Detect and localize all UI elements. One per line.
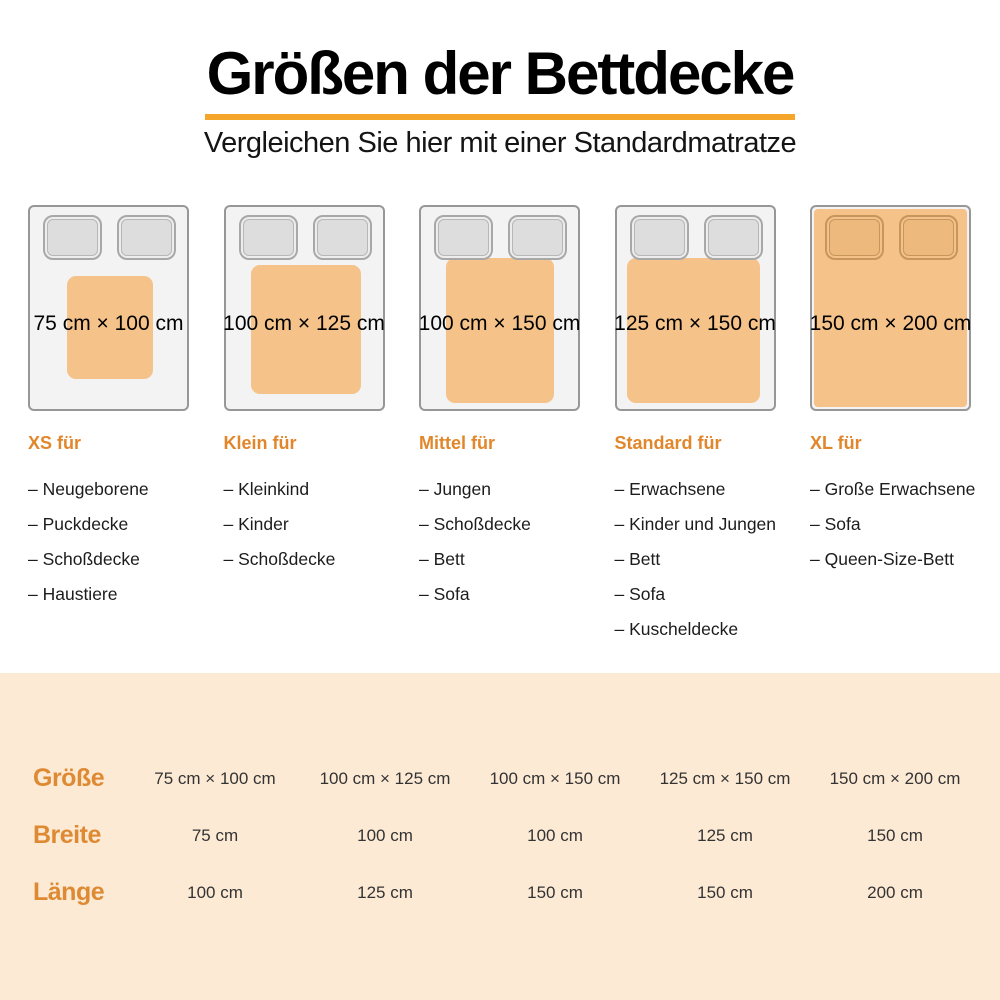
table-cell: 100 cm × 125 cm <box>300 769 470 789</box>
page-subtitle: Vergleichen Sie hier mit einer Standardm… <box>0 127 1000 160</box>
size-card-klein: 100 cm × 125 cm Klein für – Kleinkind– K… <box>224 205 420 655</box>
use-case-item: – Schoßdecke <box>224 550 420 568</box>
pillows <box>43 215 176 260</box>
row-label: Länge <box>0 878 130 907</box>
size-label: 75 cm × 100 cm <box>34 312 184 336</box>
pillows <box>434 215 567 260</box>
use-case-item: – Sofa <box>810 515 1000 533</box>
card-heading: Mittel für <box>419 433 615 454</box>
pillow-icon <box>313 215 372 260</box>
pillow-icon <box>434 215 493 260</box>
table-cell: 150 cm <box>470 883 640 903</box>
use-case-item: – Kleinkind <box>224 480 420 498</box>
use-case-item: – Erwachsene <box>615 480 811 498</box>
bed-diagram: 75 cm × 100 cm <box>28 205 189 411</box>
table-cell: 200 cm <box>810 883 980 903</box>
bed-diagram: 125 cm × 150 cm <box>615 205 776 411</box>
pillow-icon <box>239 215 298 260</box>
use-case-item: – Jungen <box>419 480 615 498</box>
pillow-inner <box>829 219 880 256</box>
use-case-list: – Kleinkind– Kinder– Schoßdecke <box>224 480 420 568</box>
size-card-mittel: 100 cm × 150 cm Mittel für – Jungen– Sch… <box>419 205 615 655</box>
table-cell: 75 cm × 100 cm <box>130 769 300 789</box>
size-cards-row: 75 cm × 100 cm XS für – Neugeborene– Puc… <box>28 205 1000 655</box>
pillow-icon <box>899 215 958 260</box>
table-row-groesse: Größe 75 cm × 100 cm100 cm × 125 cm100 c… <box>0 750 1000 807</box>
size-card-xs: 75 cm × 100 cm XS für – Neugeborene– Puc… <box>28 205 224 655</box>
bed-diagram: 100 cm × 150 cm <box>419 205 580 411</box>
pillow-inner <box>438 219 489 256</box>
size-table-section: Größe 75 cm × 100 cm100 cm × 125 cm100 c… <box>0 673 1000 1000</box>
pillow-inner <box>121 219 172 256</box>
table-cell: 100 cm <box>300 826 470 846</box>
use-case-item: – Kuscheldecke <box>615 620 811 638</box>
use-case-item: – Schoßdecke <box>28 550 224 568</box>
pillows <box>630 215 763 260</box>
table-cell: 150 cm <box>810 826 980 846</box>
table-cell: 100 cm <box>130 883 300 903</box>
table-cell: 75 cm <box>130 826 300 846</box>
use-case-list: – Erwachsene– Kinder und Jungen– Bett– S… <box>615 480 811 638</box>
page-title: Größen der Bettdecke <box>205 42 796 120</box>
bed-diagram: 150 cm × 200 cm <box>810 205 971 411</box>
size-label: 150 cm × 200 cm <box>810 312 972 336</box>
card-heading: XL für <box>810 433 1000 454</box>
pillow-icon <box>704 215 763 260</box>
card-heading: Klein für <box>224 433 420 454</box>
use-case-list: – Große Erwachsene– Sofa– Queen-Size-Bet… <box>810 480 1000 568</box>
header: Größen der Bettdecke Vergleichen Sie hie… <box>0 42 1000 160</box>
pillow-inner <box>708 219 759 256</box>
use-case-item: – Queen-Size-Bett <box>810 550 1000 568</box>
table-cell: 125 cm × 150 cm <box>640 769 810 789</box>
pillow-icon <box>825 215 884 260</box>
use-case-item: – Kinder und Jungen <box>615 515 811 533</box>
pillow-icon <box>630 215 689 260</box>
table-cell: 125 cm <box>640 826 810 846</box>
pillow-icon <box>117 215 176 260</box>
size-label: 100 cm × 125 cm <box>223 312 385 336</box>
size-card-standard: 125 cm × 150 cm Standard für – Erwachsen… <box>615 205 811 655</box>
pillow-inner <box>317 219 368 256</box>
use-case-item: – Puckdecke <box>28 515 224 533</box>
use-case-item: – Schoßdecke <box>419 515 615 533</box>
table-row-breite: Breite 75 cm100 cm100 cm125 cm150 cm <box>0 807 1000 864</box>
size-label: 125 cm × 150 cm <box>614 312 776 336</box>
row-label: Breite <box>0 821 130 850</box>
size-card-xl: 150 cm × 200 cm XL für – Große Erwachsen… <box>810 205 1000 655</box>
use-case-list: – Neugeborene– Puckdecke– Schoßdecke– Ha… <box>28 480 224 603</box>
pillow-inner <box>903 219 954 256</box>
use-case-list: – Jungen– Schoßdecke– Bett– Sofa <box>419 480 615 603</box>
pillows <box>239 215 372 260</box>
pillow-inner <box>634 219 685 256</box>
pillow-inner <box>243 219 294 256</box>
table-cell: 150 cm <box>640 883 810 903</box>
pillows <box>825 215 958 260</box>
table-cell: 100 cm × 150 cm <box>470 769 640 789</box>
pillow-icon <box>43 215 102 260</box>
table-cell: 100 cm <box>470 826 640 846</box>
use-case-item: – Bett <box>615 550 811 568</box>
size-table: Größe 75 cm × 100 cm100 cm × 125 cm100 c… <box>0 673 1000 921</box>
card-heading: Standard für <box>615 433 811 454</box>
use-case-item: – Neugeborene <box>28 480 224 498</box>
table-row-laenge: Länge 100 cm125 cm150 cm150 cm200 cm <box>0 864 1000 921</box>
use-case-item: – Kinder <box>224 515 420 533</box>
bed-diagram: 100 cm × 125 cm <box>224 205 385 411</box>
use-case-item: – Sofa <box>615 585 811 603</box>
use-case-item: – Sofa <box>419 585 615 603</box>
pillow-icon <box>508 215 567 260</box>
use-case-item: – Bett <box>419 550 615 568</box>
table-cell: 150 cm × 200 cm <box>810 769 980 789</box>
pillow-inner <box>512 219 563 256</box>
card-heading: XS für <box>28 433 224 454</box>
size-label: 100 cm × 150 cm <box>419 312 581 336</box>
table-cell: 125 cm <box>300 883 470 903</box>
pillow-inner <box>47 219 98 256</box>
use-case-item: – Haustiere <box>28 585 224 603</box>
use-case-item: – Große Erwachsene <box>810 480 1000 498</box>
row-label: Größe <box>0 764 130 793</box>
